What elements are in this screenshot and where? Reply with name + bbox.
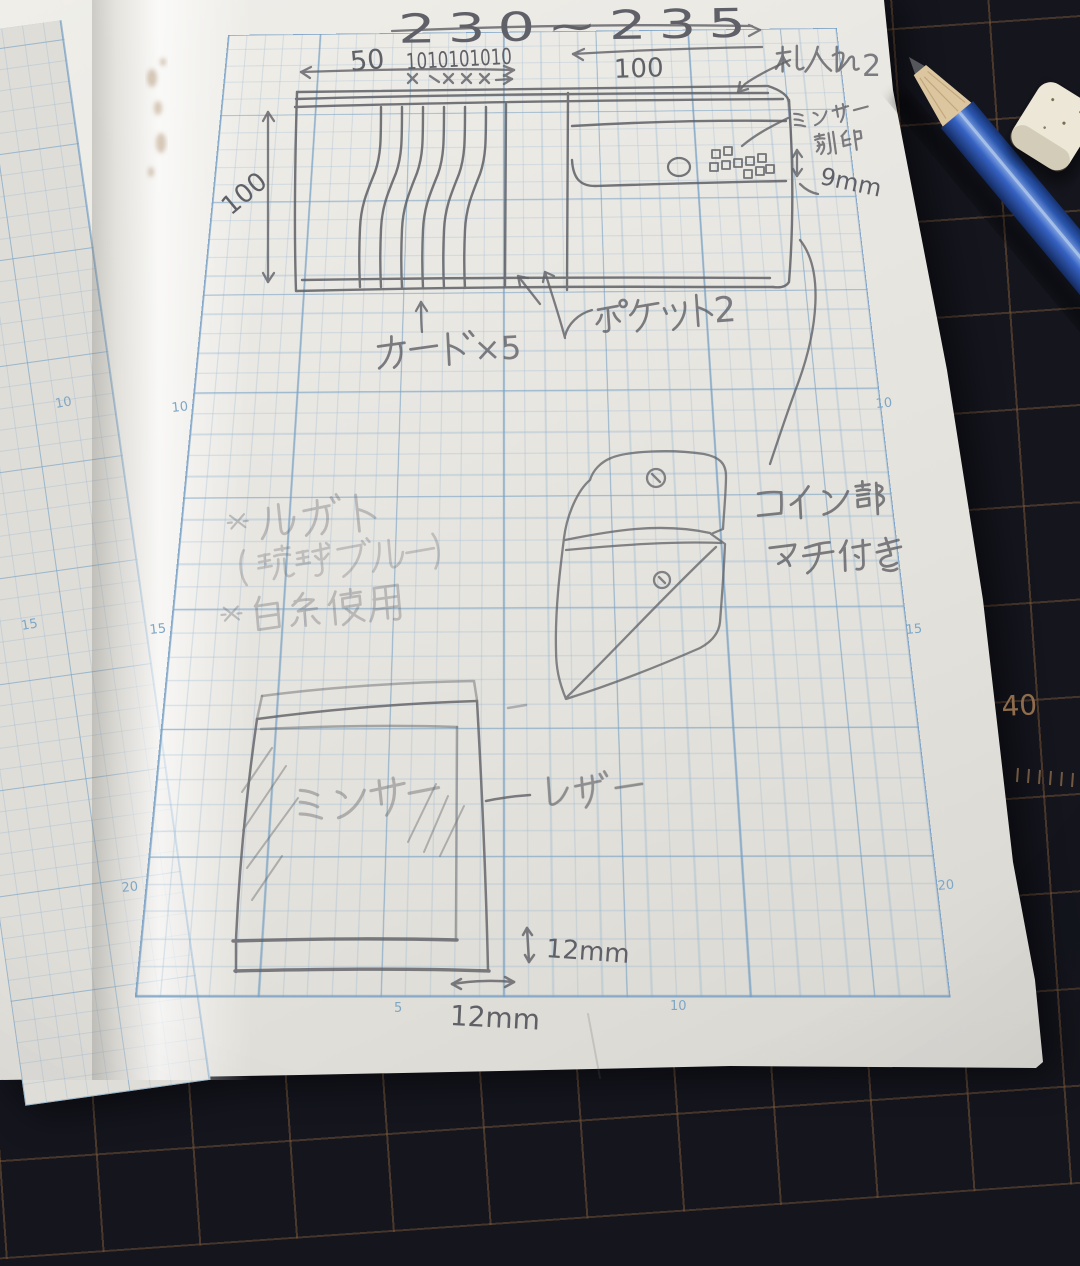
mat-ruler-ticks bbox=[1017, 768, 1073, 787]
mat-ruler-number: 40 bbox=[1001, 688, 1038, 723]
tools-layer: 40 bbox=[0, 0, 1080, 1080]
